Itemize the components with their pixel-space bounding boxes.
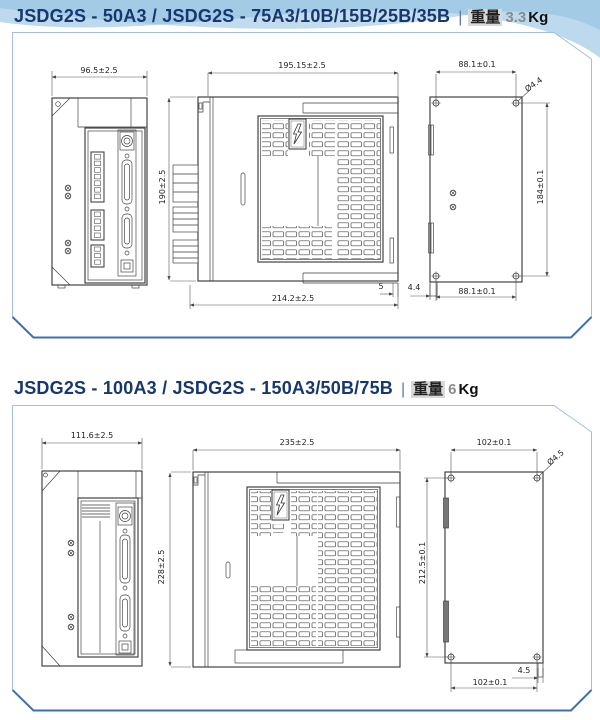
model-names: JSDG2S - 50A3 / JSDG2S - 75A3/10B/15B/25… bbox=[14, 6, 450, 26]
dim-front-width: 96.5±2.5 bbox=[80, 67, 117, 75]
section-title-1: JSDG2S - 50A3 / JSDG2S - 75A3/10B/15B/25… bbox=[14, 6, 548, 27]
weight-value: 3.3 bbox=[505, 9, 526, 26]
dim-back-pitch-top: 88.1±0.1 bbox=[458, 61, 495, 69]
screw bbox=[65, 248, 71, 254]
weight-label: 重量 bbox=[411, 381, 445, 398]
weight-unit: Kg bbox=[528, 9, 548, 26]
title-separator: | bbox=[401, 381, 405, 398]
dim-side-depth: 235±2.5 bbox=[280, 439, 315, 447]
terminal-block bbox=[91, 245, 104, 267]
dim-back-pitch-bottom: 102±0.1 bbox=[473, 679, 508, 687]
screw bbox=[68, 540, 74, 546]
screw bbox=[450, 190, 456, 196]
dim-back-pitch-vertical: 212.5±0.1 bbox=[419, 542, 427, 584]
model-names: JSDG2S - 100A3 / JSDG2S - 150A3/50B/75B bbox=[14, 378, 393, 398]
warning-label bbox=[272, 490, 289, 520]
dim-side-gap: 5 bbox=[378, 283, 383, 291]
title-separator: | bbox=[458, 9, 462, 26]
dim-front-width: 111.6±2.5 bbox=[71, 432, 113, 440]
screw bbox=[450, 204, 456, 210]
vent-grid bbox=[318, 491, 377, 646]
dim-side-height: 228±2.5 bbox=[158, 550, 166, 585]
terminal-block bbox=[91, 152, 104, 202]
terminal-block bbox=[91, 210, 104, 240]
dim-back-pitch-top: 102±0.1 bbox=[477, 439, 512, 447]
weight-label: 重量 bbox=[468, 9, 502, 26]
dim-side-height: 190±2.5 bbox=[159, 170, 167, 205]
vent-grid bbox=[272, 524, 285, 533]
dim-side-total-depth: 214.2±2.5 bbox=[272, 295, 314, 303]
warning-label bbox=[289, 119, 306, 149]
vent-grid bbox=[291, 491, 317, 536]
drawing-panel-2 bbox=[12, 405, 592, 712]
vent-grid bbox=[309, 120, 335, 156]
screw bbox=[65, 193, 71, 199]
screw bbox=[68, 550, 74, 556]
dim-side-depth: 195.15±2.5 bbox=[278, 62, 325, 70]
weight-value: 6 bbox=[448, 381, 456, 398]
vent-grid bbox=[251, 586, 316, 646]
screw bbox=[68, 614, 74, 620]
vent-grid bbox=[262, 120, 288, 156]
dim-back-pitch-bottom: 88.1±0.1 bbox=[458, 288, 495, 296]
dim-back-foot: 4.4 bbox=[408, 284, 421, 292]
dim-back-pitch-vertical: 184±0.1 bbox=[537, 170, 545, 205]
section-title-2: JSDG2S - 100A3 / JSDG2S - 150A3/50B/75B|… bbox=[14, 378, 479, 399]
weight-unit: Kg bbox=[459, 381, 479, 398]
vent-grid bbox=[251, 491, 271, 536]
drawing-panel-1 bbox=[12, 32, 592, 339]
vent-grid bbox=[337, 120, 380, 259]
dim-back-foot: 4.5 bbox=[518, 667, 531, 675]
screw bbox=[65, 240, 71, 246]
vent-grid bbox=[262, 226, 332, 259]
screw bbox=[65, 185, 71, 191]
manual-page: JSDG2S - 50A3 / JSDG2S - 75A3/10B/15B/25… bbox=[0, 0, 600, 720]
screw bbox=[68, 624, 74, 630]
